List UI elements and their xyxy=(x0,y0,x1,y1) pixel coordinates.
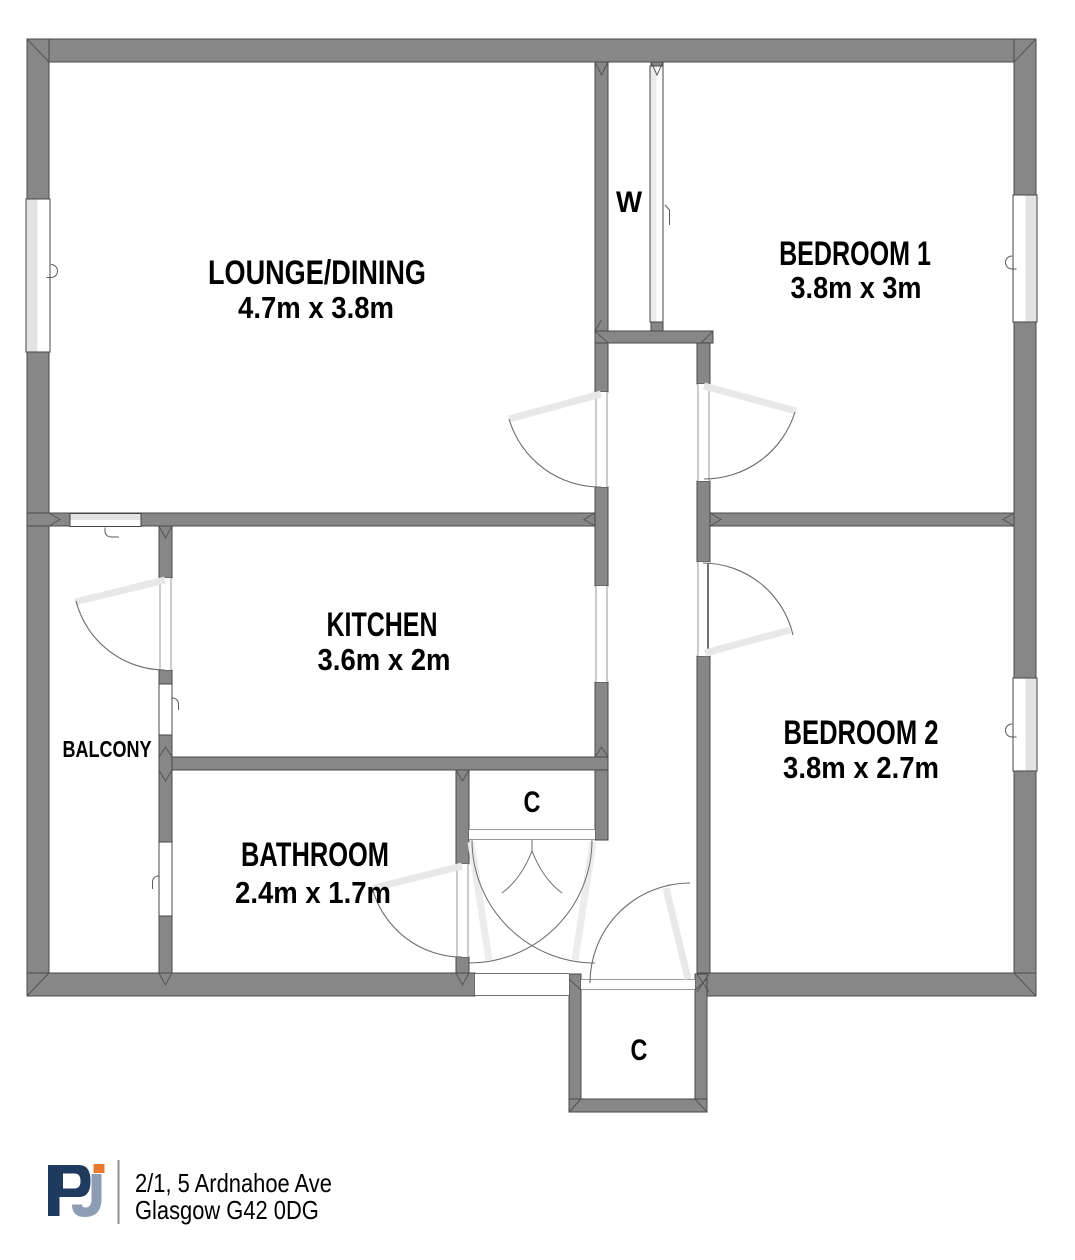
svg-text:KITCHEN: KITCHEN xyxy=(326,606,437,644)
svg-text:2/1, 5 Ardnahoe Ave: 2/1, 5 Ardnahoe Ave xyxy=(135,1169,332,1198)
svg-text:3.8m x 3m: 3.8m x 3m xyxy=(790,271,921,305)
svg-text:BATHROOM: BATHROOM xyxy=(241,837,389,874)
svg-text:BEDROOM 2: BEDROOM 2 xyxy=(784,715,939,752)
svg-text:Glasgow G42 0DG: Glasgow G42 0DG xyxy=(135,1196,319,1225)
svg-text:W: W xyxy=(616,186,643,219)
svg-text:LOUNGE/DINING: LOUNGE/DINING xyxy=(208,253,426,292)
svg-text:C: C xyxy=(524,785,541,818)
svg-text:BALCONY: BALCONY xyxy=(63,737,152,763)
svg-text:4.7m x 3.8m: 4.7m x 3.8m xyxy=(238,290,394,325)
svg-text:3.6m x 2m: 3.6m x 2m xyxy=(318,642,451,677)
svg-text:BEDROOM 1: BEDROOM 1 xyxy=(779,235,931,273)
svg-text:C: C xyxy=(631,1033,648,1066)
svg-text:2.4m x 1.7m: 2.4m x 1.7m xyxy=(235,875,391,910)
svg-text:3.8m x 2.7m: 3.8m x 2.7m xyxy=(783,750,939,785)
